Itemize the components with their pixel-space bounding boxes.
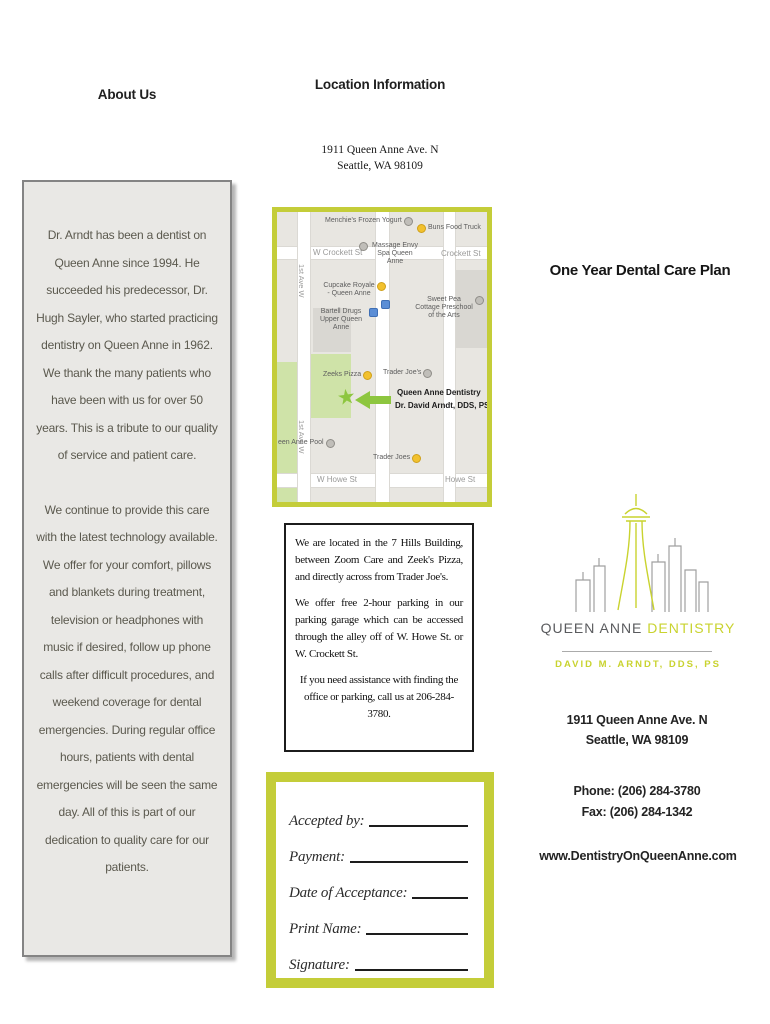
map-poi-cupcake-royale: Cupcake Royale - Queen Anne	[323, 282, 386, 298]
map-poi-trader-joes-upper: Trader Joe's	[383, 369, 432, 378]
accepted-by-blank-line[interactable]	[369, 824, 468, 827]
about-us-box: Dr. Arndt has been a dentist on Queen An…	[22, 180, 232, 957]
grocery-marker-icon	[412, 454, 421, 463]
map-poi-sweet-pea-label: Sweet Pea Cottage Preschool of the Arts	[415, 296, 473, 320]
print-name-blank-line[interactable]	[366, 932, 468, 935]
signature-blank-line[interactable]	[355, 968, 468, 971]
location-address: 1911 Queen Anne Ave. N Seattle, WA 98109	[280, 143, 480, 174]
transit-stop-icon	[381, 300, 390, 309]
map-label-w-howe-st: W Howe St	[317, 475, 357, 484]
pool-marker-icon	[326, 439, 335, 448]
map-poi-queen-anne-pool: een Anne Pool	[278, 439, 335, 448]
map-business-doctor: Dr. David Arndt, DDS, PS	[395, 401, 487, 410]
map-poi-pool-label: een Anne Pool	[278, 439, 324, 447]
clinic-website: www.DentistryOnQueenAnne.com	[510, 846, 766, 866]
form-row-date-of-acceptance: Date of Acceptance:	[289, 866, 470, 902]
map-poi-buns-food-truck: Buns Food Truck	[417, 224, 481, 233]
logo-tagline: DAVID M. ARNDT, DDS, PS	[510, 659, 766, 670]
map-label-howe-st: Howe St	[445, 475, 475, 484]
about-paragraph-2: We continue to provide this care with th…	[35, 497, 219, 882]
form-row-print-name: Print Name:	[289, 902, 470, 938]
payment-blank-line[interactable]	[350, 860, 468, 863]
location-address-line1: 1911 Queen Anne Ave. N	[280, 143, 480, 159]
map-label-w-crockett-st: W Crockett St	[313, 248, 362, 257]
map-label-1st-ave-upper: 1st Ave W	[297, 264, 306, 298]
payment-label: Payment:	[289, 849, 345, 866]
logo-divider	[562, 651, 712, 652]
map-poi-trader-joes-lower: Trader Joes	[373, 454, 421, 463]
clinic-contact: Phone: (206) 284-3780 Fax: (206) 284-134…	[537, 781, 737, 823]
map-poi-zeeks-pizza: Zeeks Pizza	[323, 371, 372, 380]
map-label-1st-ave-lower: 1st Ave W	[297, 420, 306, 454]
directions-paragraph-1: We are located in the 7 Hills Building, …	[295, 535, 463, 586]
accepted-by-label: Accepted by:	[289, 813, 364, 830]
map-canvas: W Crockett St Crockett St W Howe St Howe…	[277, 212, 487, 502]
clinic-fax: Fax: (206) 284-1342	[537, 802, 737, 823]
map-poi-bartell-label: Bartell Drugs Upper Queen Anne	[315, 308, 367, 332]
frozen-yogurt-marker-icon	[404, 217, 413, 226]
map-poi-bartell-drugs: Bartell Drugs Upper Queen Anne	[315, 308, 378, 332]
form-row-payment: Payment:	[289, 830, 470, 866]
green-arrow-icon	[355, 390, 391, 410]
spa-marker-icon	[359, 242, 368, 251]
map-poi-massage-envy: Massage Envy Spa Queen Anne	[359, 242, 420, 266]
location-address-line2: Seattle, WA 98109	[280, 159, 480, 175]
seattle-skyline-logo-icon	[558, 488, 716, 616]
map-poi-menchies: Menchie's Frozen Yogurt	[325, 217, 413, 226]
logo-name-gray: QUEEN ANNE	[541, 620, 643, 636]
preschool-marker-icon	[475, 296, 484, 305]
form-row-accepted-by: Accepted by:	[289, 794, 470, 830]
logo-name-green: DENTISTRY	[642, 620, 735, 636]
directions-info-box: We are located in the 7 Hills Building, …	[284, 523, 474, 752]
about-paragraph-1: Dr. Arndt has been a dentist on Queen An…	[35, 222, 219, 470]
map-business-name: Queen Anne Dentistry	[397, 388, 481, 397]
map-poi-zeeks-label: Zeeks Pizza	[323, 371, 361, 379]
map-label-crockett-st: Crockett St	[441, 249, 481, 258]
print-name-label: Print Name:	[289, 921, 361, 938]
map-poi-trader-joes-lower-label: Trader Joes	[373, 454, 410, 462]
map-poi-menchies-label: Menchie's Frozen Yogurt	[325, 217, 402, 225]
clinic-address-line1: 1911 Queen Anne Ave. N	[537, 710, 737, 730]
directions-paragraph-2: We offer free 2-hour parking in our park…	[295, 595, 463, 663]
clinic-phone: Phone: (206) 284-3780	[537, 781, 737, 802]
map-poi-trader-joes-upper-label: Trader Joe's	[383, 369, 421, 377]
location-map: W Crockett St Crockett St W Howe St Howe…	[272, 207, 492, 507]
map-poi-cupcake-label: Cupcake Royale - Queen Anne	[323, 282, 375, 298]
brochure-page: About Us Dr. Arndt has been a dentist on…	[0, 0, 770, 1024]
logo-wordmark: QUEEN ANNE DENTISTRY	[510, 620, 766, 636]
directions-paragraph-3: If you need assistance with finding the …	[295, 672, 463, 723]
grocery-marker-icon	[423, 369, 432, 378]
date-of-acceptance-blank-line[interactable]	[412, 896, 468, 899]
map-poi-sweet-pea: Sweet Pea Cottage Preschool of the Arts	[415, 296, 484, 320]
acceptance-form-box: Accepted by: Payment: Date of Acceptance…	[266, 772, 494, 988]
map-street-1st-ave	[297, 212, 311, 502]
clinic-address-line2: Seattle, WA 98109	[537, 730, 737, 750]
cupcake-marker-icon	[377, 282, 386, 291]
signature-label: Signature:	[289, 957, 350, 974]
map-poi-buns-label: Buns Food Truck	[428, 224, 481, 232]
form-row-signature: Signature:	[289, 938, 470, 974]
pizza-marker-icon	[363, 371, 372, 380]
about-us-heading: About Us	[22, 87, 232, 102]
plan-title: One Year Dental Care Plan	[520, 262, 760, 279]
date-of-acceptance-label: Date of Acceptance:	[289, 885, 407, 902]
food-truck-marker-icon	[417, 224, 426, 233]
pharmacy-marker-icon	[369, 308, 378, 317]
map-poi-massage-envy-label: Massage Envy Spa Queen Anne	[370, 242, 420, 266]
clinic-address: 1911 Queen Anne Ave. N Seattle, WA 98109	[537, 710, 737, 750]
location-information-heading: Location Information	[280, 77, 480, 92]
